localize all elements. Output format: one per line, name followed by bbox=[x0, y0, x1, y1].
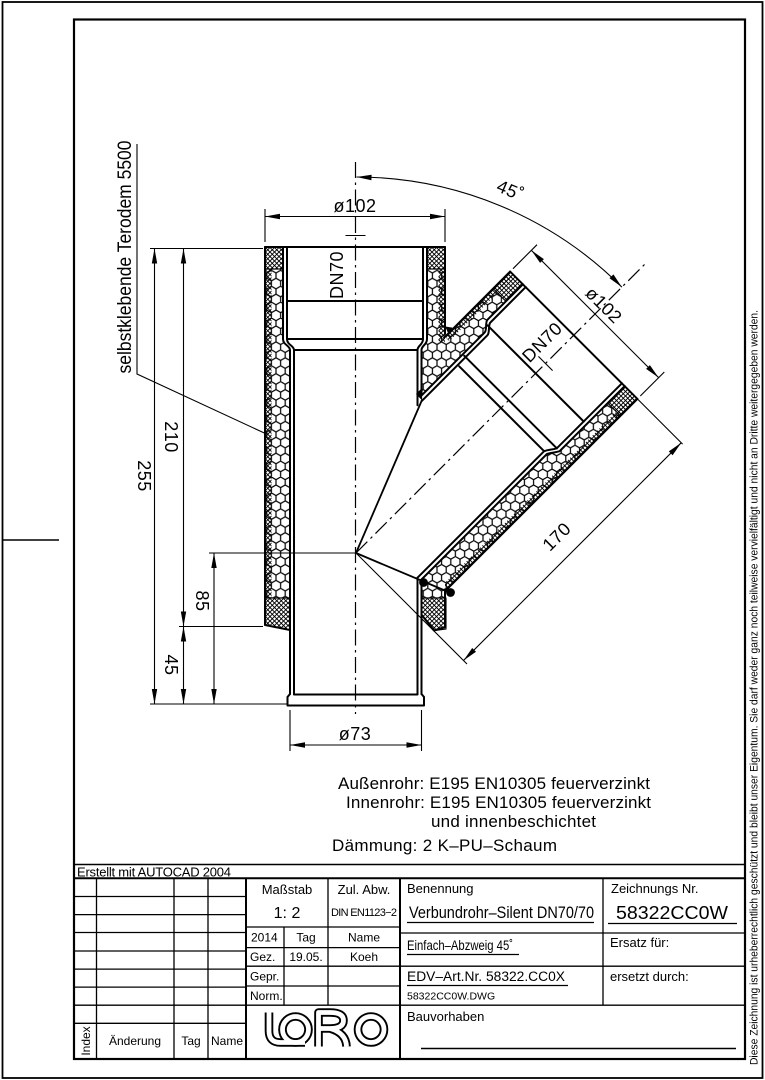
svg-text:ersetzt durch:: ersetzt durch: bbox=[610, 969, 689, 984]
svg-text:Name: Name bbox=[348, 931, 380, 945]
svg-text:85: 85 bbox=[192, 590, 212, 611]
svg-text:Gepr.: Gepr. bbox=[250, 970, 279, 984]
svg-text:19.05.: 19.05. bbox=[289, 950, 322, 964]
svg-text:Zul. Abw.: Zul. Abw. bbox=[338, 882, 391, 897]
svg-text:Benennung: Benennung bbox=[407, 881, 474, 896]
svg-text:58322CC0W: 58322CC0W bbox=[616, 903, 728, 923]
svg-text:und innenbeschichtet: und innenbeschichtet bbox=[431, 812, 596, 831]
svg-text:Verbundrohr–Silent DN70/70: Verbundrohr–Silent DN70/70 bbox=[409, 904, 594, 922]
svg-text:ø73: ø73 bbox=[339, 724, 372, 744]
svg-text:255: 255 bbox=[134, 460, 154, 492]
svg-text:Tag: Tag bbox=[296, 931, 315, 945]
svg-text:selbstklebende Terodem 5500: selbstklebende Terodem 5500 bbox=[115, 141, 136, 374]
svg-text:DN70: DN70 bbox=[327, 251, 347, 299]
svg-text:DIN EN1123−2: DIN EN1123−2 bbox=[331, 907, 397, 919]
svg-text:Innenrohr: E195 EN10305 feu: Innenrohr: E195 EN10305 feuerverzinkt bbox=[346, 793, 651, 812]
svg-text:Norm.: Norm. bbox=[250, 989, 283, 1003]
svg-text:210: 210 bbox=[161, 421, 181, 453]
svg-text:EDV–Art.Nr. 58322.CC0X: EDV–Art.Nr. 58322.CC0X bbox=[407, 969, 565, 984]
svg-text:Dämmung: 2 K–PU–Schaum: Dämmung: 2 K–PU–Schaum bbox=[332, 836, 557, 855]
svg-text:Einfach–Abzweig 45˚: Einfach–Abzweig 45˚ bbox=[407, 937, 513, 953]
svg-text:Koeh: Koeh bbox=[350, 950, 378, 964]
svg-text:Index: Index bbox=[79, 1026, 93, 1055]
svg-text:Name: Name bbox=[211, 1034, 243, 1048]
svg-text:Tag: Tag bbox=[181, 1034, 200, 1048]
svg-text:Erstellt mit AUTOCAD 2004: Erstellt mit AUTOCAD 2004 bbox=[77, 865, 231, 880]
svg-text:1: 2: 1: 2 bbox=[274, 905, 301, 922]
svg-text:Zeichnungs Nr.: Zeichnungs Nr. bbox=[611, 881, 698, 896]
svg-text:Maßstab: Maßstab bbox=[262, 882, 313, 897]
svg-text:58322CC0W.DWG: 58322CC0W.DWG bbox=[407, 991, 495, 1003]
svg-text:2014: 2014 bbox=[251, 931, 278, 945]
svg-text:Gez.: Gez. bbox=[250, 950, 275, 964]
svg-text:Bauvorhaben: Bauvorhaben bbox=[407, 1009, 484, 1024]
svg-text:Ersatz für:: Ersatz für: bbox=[610, 935, 669, 950]
svg-text:Außenrohr: E195 EN10305 feu: Außenrohr: E195 EN10305 feuerverzinkt bbox=[338, 774, 650, 793]
svg-text:45: 45 bbox=[161, 654, 181, 675]
svg-text:Diese Zeichnung ist urheberrec: Diese Zeichnung ist urheberrechtlich ges… bbox=[749, 310, 761, 1065]
svg-text:ø102: ø102 bbox=[333, 196, 376, 216]
svg-text:Änderung: Änderung bbox=[109, 1034, 161, 1048]
